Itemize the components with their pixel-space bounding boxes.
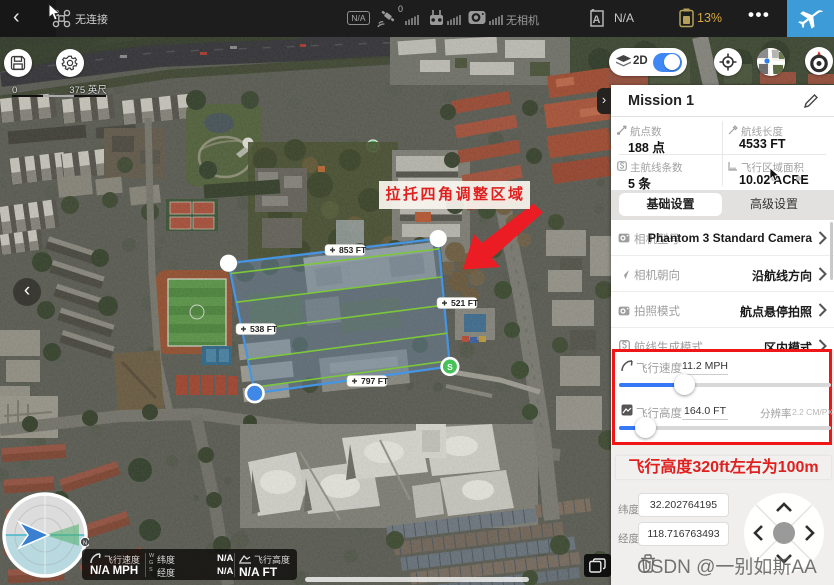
svg-text:853 FT: 853 FT (339, 245, 367, 255)
svg-text:A: A (593, 14, 601, 26)
svg-text:797 FT: 797 FT (361, 376, 389, 386)
svg-text:538 FT: 538 FT (250, 324, 278, 334)
svg-text:S: S (447, 362, 453, 372)
svg-text:521 FT: 521 FT (451, 298, 479, 308)
svg-text:N: N (83, 540, 87, 546)
